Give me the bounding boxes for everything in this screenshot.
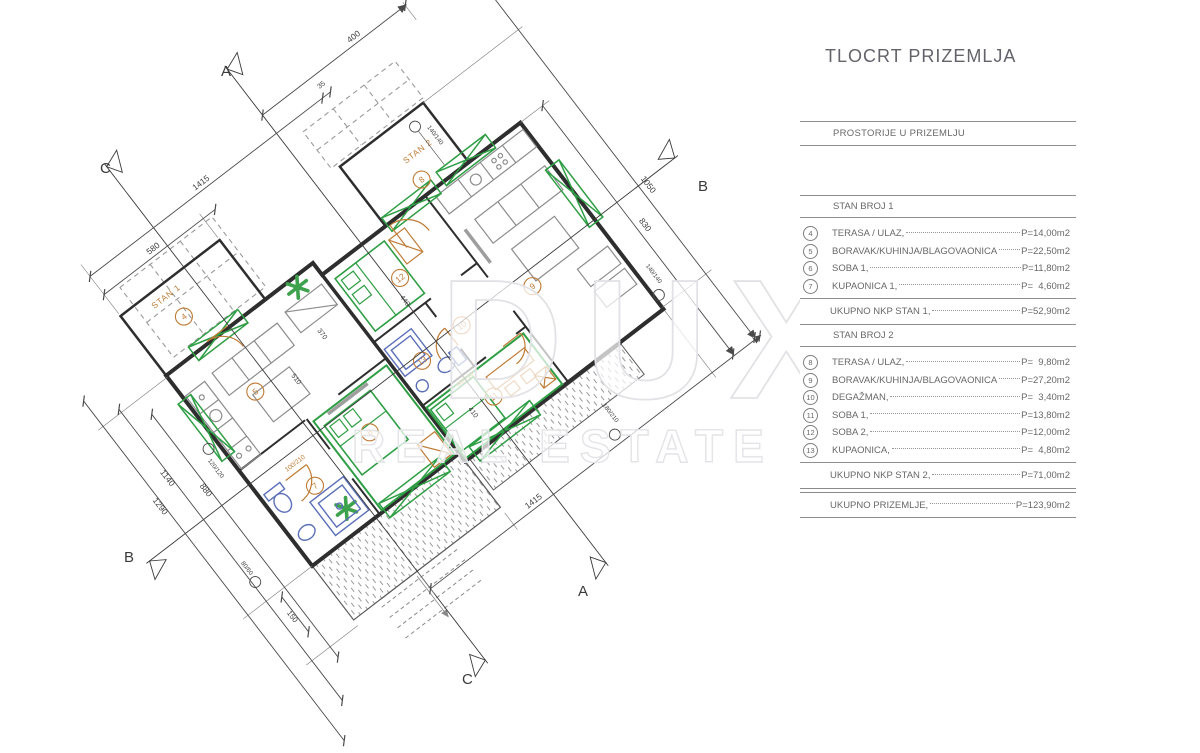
section-letter-c-top: C bbox=[100, 160, 111, 177]
room-area: P=13,80m2 bbox=[1021, 410, 1070, 421]
room-label: TERASA / ULAZ, bbox=[832, 357, 904, 368]
watermark-line1: DUX bbox=[440, 245, 800, 435]
dim-top-left: 580 bbox=[144, 240, 162, 257]
legend-panel: TLOCRT PRIZEMLJA PROSTORIJE U PRIZEMLJU … bbox=[800, 0, 1112, 518]
stan1-total-row: UKUPNO NKP STAN 1, P=52,90m2 bbox=[800, 299, 1076, 324]
dot-leader bbox=[870, 413, 1020, 414]
room-area: P= 9,80m2 bbox=[1021, 357, 1070, 368]
total-area: P=71,00m2 bbox=[1021, 470, 1070, 481]
table-row: 8 TERASA / ULAZ, P= 9,80m2 bbox=[800, 354, 1076, 372]
dim-top-outer: 400 bbox=[345, 28, 363, 45]
page: 100/210 90/210 STAN 1 STAN 2 4 5 6 7 8 9… bbox=[0, 0, 1200, 753]
dot-leader bbox=[999, 249, 1020, 250]
room-number-badge: 8 bbox=[803, 355, 818, 370]
grand-total-label: UKUPNO PRIZEMLJE, bbox=[830, 500, 928, 511]
room-number-badge: 7 bbox=[803, 279, 818, 294]
table-row: 12 SOBA 2, P=12,00m2 bbox=[800, 424, 1076, 442]
room-label: SOBA 2, bbox=[832, 427, 868, 438]
room-area: P= 4,80m2 bbox=[1021, 445, 1070, 456]
section-letter-b-right: B bbox=[698, 178, 708, 195]
dot-leader bbox=[906, 361, 1020, 362]
room-label: SOBA 1, bbox=[832, 410, 868, 421]
room-number-badge: 11 bbox=[803, 408, 818, 423]
table-header: PROSTORIJE U PRIZEMLJU bbox=[800, 122, 1076, 145]
stan2-total-row: UKUPNO NKP STAN 2, P=71,00m2 bbox=[800, 463, 1076, 488]
room-label: BORAVAK/KUHINJA/BLAGOVAONICA bbox=[832, 246, 997, 257]
room-number-badge: 10 bbox=[803, 390, 818, 405]
grand-total-row: UKUPNO PRIZEMLJE, P=123,90m2 bbox=[800, 493, 1076, 517]
dim-top-small: 35 bbox=[316, 80, 327, 90]
room-area: P= 4,60m2 bbox=[1021, 281, 1070, 292]
dot-leader bbox=[870, 267, 1020, 268]
room-label: KUPAONICA, bbox=[832, 445, 890, 456]
rooms-table: PROSTORIJE U PRIZEMLJU STAN BROJ 1 4 TER… bbox=[800, 121, 1076, 518]
room-number: 8 bbox=[417, 174, 427, 185]
room-number-badge: 6 bbox=[803, 261, 818, 276]
stan1-rows: 4 TERASA / ULAZ, P=14,00m2 5 BORAVAK/KUH… bbox=[800, 218, 1076, 298]
dot-leader bbox=[892, 448, 1020, 449]
room-area: P=11,80m2 bbox=[1022, 263, 1070, 274]
dim-left-inner: 880 bbox=[198, 481, 215, 499]
stan2-label: STAN 2 bbox=[401, 137, 434, 166]
dim-step: 150 bbox=[285, 609, 300, 624]
room-area: P=22,50m2 bbox=[1021, 246, 1070, 257]
dim-bottom: 1415 bbox=[523, 491, 544, 511]
dot-leader bbox=[930, 503, 1015, 504]
room-number-badge: 5 bbox=[803, 244, 818, 259]
dim-right-inner: 830 bbox=[637, 216, 654, 234]
table-row: 11 SOBA 1, P=13,80m2 bbox=[800, 407, 1076, 425]
room-label: DEGAŽMAN, bbox=[832, 392, 888, 403]
room-number-badge: 12 bbox=[803, 425, 818, 440]
stan2-rows: 8 TERASA / ULAZ, P= 9,80m2 9 BORAVAK/KUH… bbox=[800, 347, 1076, 462]
room-number-badge: 9 bbox=[803, 373, 818, 388]
dim-top-main: 1415 bbox=[190, 173, 211, 193]
dot-leader bbox=[932, 474, 1020, 475]
section-heading-stan1: STAN BROJ 1 bbox=[800, 196, 1076, 217]
dot-leader bbox=[870, 431, 1020, 432]
divider bbox=[800, 517, 1076, 518]
total-label: UKUPNO NKP STAN 1, bbox=[830, 306, 930, 317]
grand-total-area: P=123,90m2 bbox=[1016, 500, 1070, 511]
room-number-badge: 13 bbox=[803, 443, 818, 458]
room-label: KUPAONICA 1, bbox=[832, 281, 897, 292]
section-letter-a-bottom: A bbox=[578, 583, 588, 600]
table-row: 6 SOBA 1, P=11,80m2 bbox=[800, 260, 1076, 278]
section-letter-c-bottom: C bbox=[462, 671, 473, 688]
table-row: 13 KUPAONICA, P= 4,80m2 bbox=[800, 442, 1076, 460]
page-title: TLOCRT PRIZEMLJA bbox=[825, 46, 1112, 67]
dot-leader bbox=[999, 378, 1020, 379]
table-row: 4 TERASA / ULAZ, P=14,00m2 bbox=[800, 225, 1076, 243]
room-area: P=14,00m2 bbox=[1021, 228, 1070, 239]
room-label: BORAVAK/KUHINJA/BLAGOVAONICA bbox=[832, 375, 997, 386]
room-area: P=27,20m2 bbox=[1021, 375, 1070, 386]
watermark-line2: REAL ESTATE bbox=[352, 420, 774, 472]
dot-leader bbox=[890, 396, 1020, 397]
section-heading-stan2: STAN BROJ 2 bbox=[800, 325, 1076, 346]
section-letter-a-top: A bbox=[221, 63, 231, 80]
dim-left-outer: 1290 bbox=[151, 495, 171, 516]
dot-leader bbox=[906, 232, 1020, 233]
dim-right-outer: 1050 bbox=[639, 174, 659, 195]
room-label: TERASA / ULAZ, bbox=[832, 228, 904, 239]
table-row: 9 BORAVAK/KUHINJA/BLAGOVAONICA P=27,20m2 bbox=[800, 372, 1076, 390]
table-row: 7 KUPAONICA 1, P= 4,60m2 bbox=[800, 278, 1076, 296]
room-area: P=12,00m2 bbox=[1021, 427, 1070, 438]
total-label: UKUPNO NKP STAN 2, bbox=[830, 470, 930, 481]
room-number: 4 bbox=[179, 311, 189, 322]
spacer-gap bbox=[800, 146, 1076, 195]
total-area: P=52,90m2 bbox=[1021, 306, 1070, 317]
floor-plan: 100/210 90/210 STAN 1 STAN 2 4 5 6 7 8 9… bbox=[0, 0, 800, 753]
room-area: P= 3,40m2 bbox=[1021, 392, 1070, 403]
dot-leader bbox=[932, 310, 1020, 311]
stan1-label: STAN 1 bbox=[149, 282, 182, 311]
dim-left-mid: 1140 bbox=[158, 467, 177, 488]
section-letter-b-left: B bbox=[124, 549, 134, 566]
room-number-badge: 4 bbox=[803, 226, 818, 241]
room-label: SOBA 1, bbox=[832, 263, 868, 274]
table-row: 5 BORAVAK/KUHINJA/BLAGOVAONICA P=22,50m2 bbox=[800, 243, 1076, 261]
table-row: 10 DEGAŽMAN, P= 3,40m2 bbox=[800, 389, 1076, 407]
dot-leader bbox=[899, 284, 1020, 285]
